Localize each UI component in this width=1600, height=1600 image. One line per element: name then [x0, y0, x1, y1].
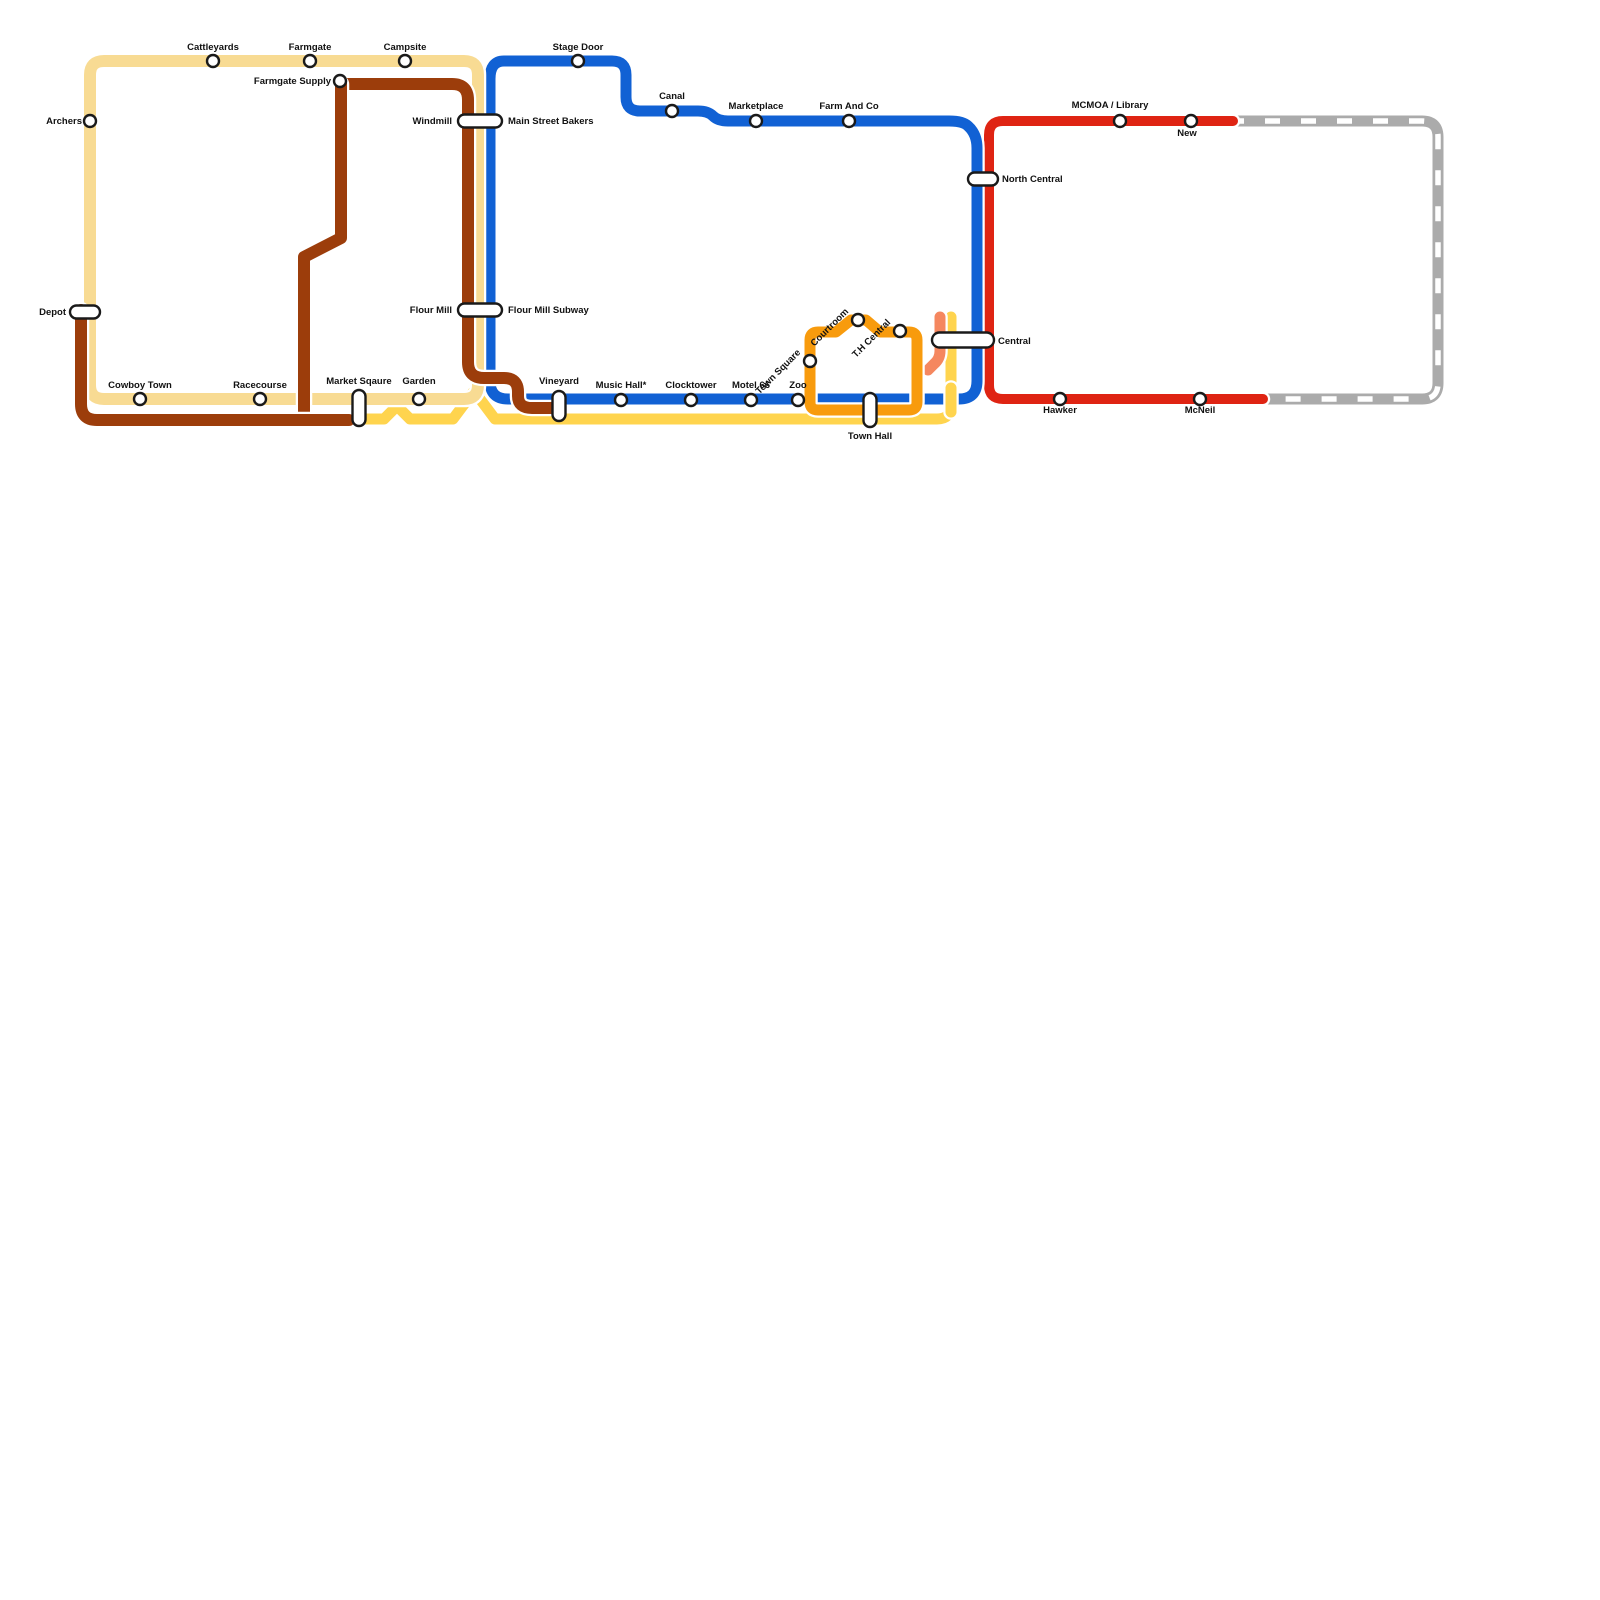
- station-marker-farmgate-supply: [334, 75, 346, 87]
- station-label-zoo: Zoo: [789, 380, 807, 391]
- station-marker-canal: [666, 105, 678, 117]
- station-marker-cattleyards: [207, 55, 219, 67]
- station-marker-farmgate: [304, 55, 316, 67]
- station-marker-central: [932, 333, 994, 348]
- station-label-market-sqaure: Market Sqaure: [326, 376, 391, 387]
- station-marker-th-central: [894, 325, 906, 337]
- station-label-windmill: Windmill: [413, 116, 453, 127]
- station-label-clocktower: Clocktower: [665, 380, 717, 391]
- station-label-cowboy-town: Cowboy Town: [108, 380, 172, 391]
- station-marker-zoo: [792, 394, 804, 406]
- transit-map-svg: ArchersCattleyardsFarmgateCampsiteFarmga…: [0, 0, 1600, 1600]
- station-flour-mill: Flour MillFlour Mill Subway: [410, 304, 590, 317]
- station-marker-courtroom: [852, 314, 864, 326]
- station-marker-garden: [413, 393, 425, 405]
- station-label-campsite: Campsite: [384, 42, 427, 53]
- station-label-town-hall: Town Hall: [848, 431, 892, 442]
- station-windmill: WindmillMain Street Bakers: [413, 115, 594, 128]
- line-brown-line-north: [341, 84, 552, 408]
- station-label2-windmill: Main Street Bakers: [508, 116, 594, 127]
- station-label-mcmoa-library: MCMOA / Library: [1072, 100, 1149, 111]
- station-label-central: Central: [998, 336, 1031, 347]
- station-label-stage-door: Stage Door: [553, 42, 604, 53]
- station-label-north-central: North Central: [1002, 174, 1063, 185]
- station-label-depot: Depot: [39, 307, 67, 318]
- station-marker-windmill: [458, 115, 502, 128]
- station-label-archers: Archers: [46, 116, 82, 127]
- station-marker-mcneil: [1194, 393, 1206, 405]
- station-label-vineyard: Vineyard: [539, 376, 579, 387]
- station-label-garden: Garden: [402, 376, 435, 387]
- station-north-central: North Central: [968, 173, 1063, 186]
- station-label-marketplace: Marketplace: [729, 101, 784, 112]
- station-label-mcneil: McNeil: [1185, 405, 1216, 416]
- station-label-new: New: [1177, 128, 1197, 139]
- station-marker-cowboy-town: [134, 393, 146, 405]
- station-marker-mcmoa-library: [1114, 115, 1126, 127]
- station-marker-stage-door: [572, 55, 584, 67]
- station-marker-archers: [84, 115, 96, 127]
- station-marker-hawker: [1054, 393, 1066, 405]
- station-marker-market-sqaure: [353, 390, 366, 426]
- station-marker-clocktower: [685, 394, 697, 406]
- line-brown-line-mid: [304, 84, 341, 414]
- station-label-hawker: Hawker: [1043, 405, 1077, 416]
- station-archers: Archers: [46, 115, 96, 127]
- station-marker-motel-66: [745, 394, 757, 406]
- station-central: Central: [932, 333, 1031, 348]
- station-marker-new: [1185, 115, 1197, 127]
- station-marker-campsite: [399, 55, 411, 67]
- station-marker-farm-and-co: [843, 115, 855, 127]
- station-farmgate-supply: Farmgate Supply: [254, 75, 346, 87]
- station-marker-town-square: [804, 355, 816, 367]
- station-marker-flour-mill: [458, 304, 502, 317]
- station-marker-north-central: [968, 173, 998, 186]
- station-marker-marketplace: [750, 115, 762, 127]
- station-marker-vineyard: [553, 391, 566, 421]
- station-marker-racecourse: [254, 393, 266, 405]
- line-gray-planned: [1237, 121, 1438, 399]
- station-label-music-hall: Music Hall*: [596, 380, 647, 391]
- station-label-farm-and-co: Farm And Co: [819, 101, 878, 112]
- station-label-farmgate: Farmgate: [289, 42, 332, 53]
- station-label2-flour-mill: Flour Mill Subway: [508, 305, 589, 316]
- transit-map: ArchersCattleyardsFarmgateCampsiteFarmga…: [0, 0, 1600, 1600]
- station-label-racecourse: Racecourse: [233, 380, 287, 391]
- station-marker-town-hall: [864, 393, 877, 427]
- line-cream-line: [90, 61, 478, 399]
- station-label-flour-mill: Flour Mill: [410, 305, 452, 316]
- station-label-cattleyards: Cattleyards: [187, 42, 239, 53]
- station-label-farmgate-supply: Farmgate Supply: [254, 76, 332, 87]
- station-marker-depot: [70, 306, 100, 319]
- line-red-line: [989, 121, 1263, 399]
- station-label-canal: Canal: [659, 91, 685, 102]
- station-marker-music-hall: [615, 394, 627, 406]
- station-depot: Depot: [39, 306, 100, 319]
